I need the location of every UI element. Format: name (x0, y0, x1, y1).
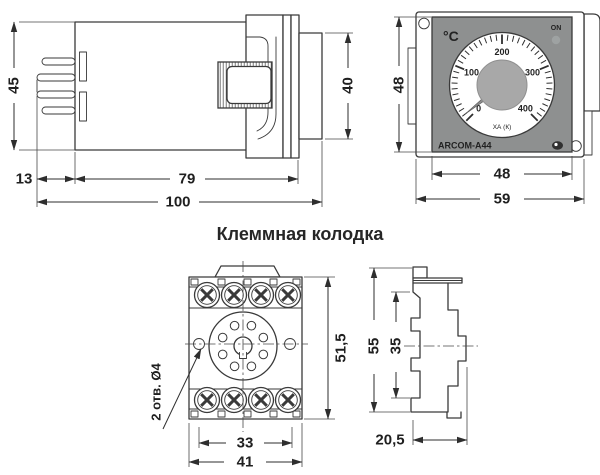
dimension-height-45: 45 (6, 22, 76, 150)
front-view: 0100200300400 °C ON ХА (К) ARCOM-A44 48 … (391, 12, 600, 208)
section-title: Клеммная колодка (217, 224, 385, 244)
pin (37, 91, 75, 98)
technical-drawing-svg: 45 40 13 79 100 01002003 (0, 0, 600, 475)
latch-strip (283, 15, 291, 158)
socket-hole (218, 333, 227, 342)
gauge-scale-label: 400 (518, 103, 533, 113)
terminal-block-side-view: 55 35 20,5 (366, 267, 479, 449)
side-profile-right (448, 283, 466, 412)
model-label: ARCOM-A44 (438, 141, 492, 151)
side-profile-left (411, 283, 447, 412)
dim-label-40: 40 (340, 77, 357, 94)
socket-hole (247, 362, 256, 371)
pin (42, 58, 75, 65)
gauge-scale-label: 200 (494, 47, 509, 57)
dim-label-45: 45 (6, 77, 23, 94)
side-tab (413, 267, 427, 278)
body-slot (80, 92, 87, 121)
setpoint-knob (477, 60, 527, 110)
socket-hole (259, 350, 268, 359)
thermocouple-label: ХА (К) (493, 124, 512, 131)
dim-label-33: 33 (237, 435, 254, 452)
plate-screw-hole (419, 18, 430, 29)
dim-label-20-5: 20,5 (375, 432, 404, 449)
socket-hole (230, 321, 239, 330)
dim-label-13: 13 (16, 171, 33, 188)
dim-label-100: 100 (165, 194, 190, 211)
mount-bracket (584, 14, 600, 111)
power-led (552, 36, 560, 44)
pin (42, 107, 75, 114)
socket-hole (259, 333, 268, 342)
side-view: 45 40 13 79 100 (6, 15, 357, 211)
dim-label-55: 55 (366, 338, 383, 355)
socket-hole (218, 350, 227, 359)
gauge-tick (507, 35, 508, 41)
gauge-scale-label: 100 (464, 67, 479, 77)
dimension-hole-spacing-33: 33 (199, 427, 292, 452)
socket-hole (247, 321, 256, 330)
gauge-tick (496, 35, 497, 41)
dim-label-48v: 48 (391, 77, 408, 94)
brand-logo-icon (552, 141, 563, 149)
dimension-side-depth-20-5: 20,5 (375, 367, 467, 449)
top-tab (215, 266, 280, 277)
gauge-scale-label: 300 (525, 67, 540, 77)
dim-label-35: 35 (388, 338, 405, 355)
dimension-terminal-height-51-5: 51,5 (304, 277, 350, 419)
terminal-block-front-view: 2 отв. Ø4 51,5 33 41 (149, 261, 350, 471)
side-foot (447, 412, 461, 418)
technical-drawing-page: 45 40 13 79 100 01002003 (0, 0, 600, 475)
unit-label: °C (443, 28, 459, 44)
hole-note-label: 2 отв. Ø4 (149, 363, 164, 421)
dim-label-79: 79 (179, 171, 196, 188)
dim-label-41: 41 (237, 454, 254, 471)
knob-face (227, 67, 271, 104)
pin (37, 74, 75, 81)
dimension-bezel-40: 40 (325, 33, 357, 139)
front-bezel (299, 33, 322, 139)
dim-label-51-5: 51,5 (333, 333, 350, 362)
dim-label-48h: 48 (494, 166, 511, 183)
socket-hole (230, 362, 239, 371)
body-slot (80, 52, 87, 81)
dimension-panel-width-48: 48 (432, 156, 572, 183)
dim-label-59: 59 (494, 191, 511, 208)
on-label: ON (551, 25, 562, 32)
mount-bracket-lower (584, 111, 592, 155)
latch-strip (291, 15, 299, 158)
dimension-side-inner-35: 35 (388, 292, 411, 398)
